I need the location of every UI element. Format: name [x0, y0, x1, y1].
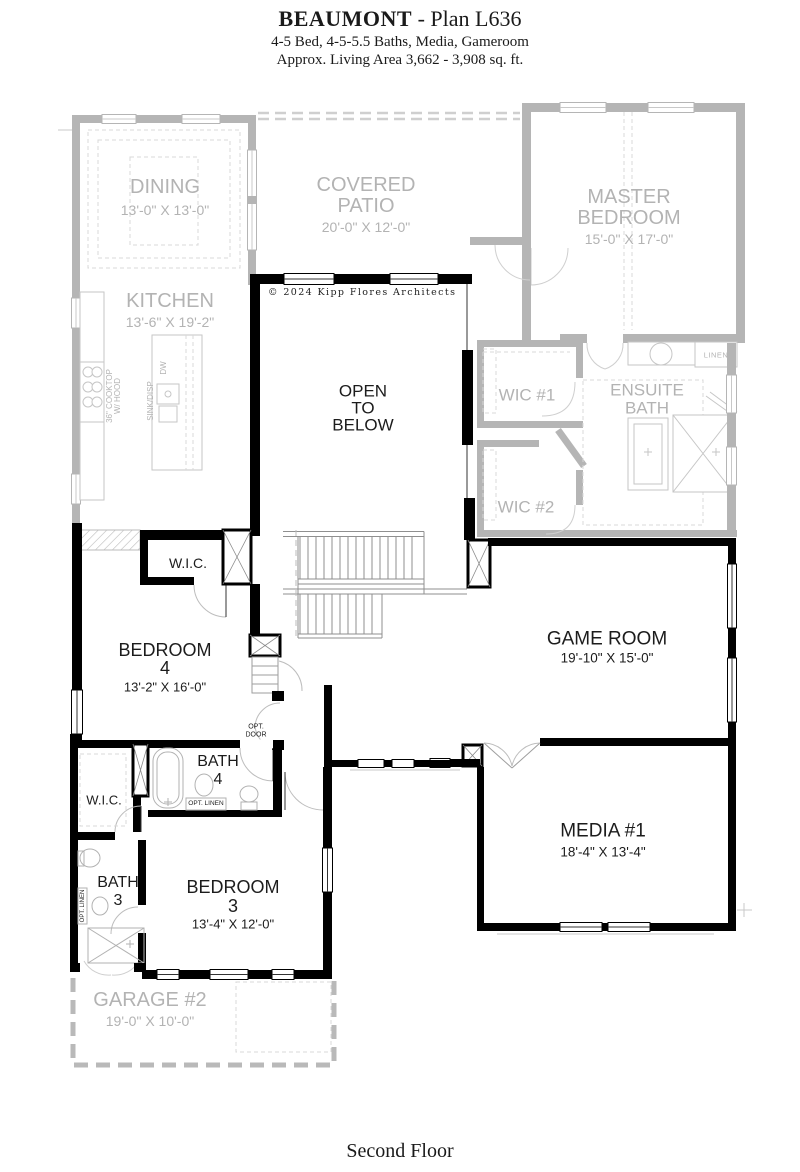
bedroom4-number: 4: [160, 659, 170, 677]
bath4-label: BATH: [197, 754, 238, 770]
wic2-label: WIC #2: [498, 499, 555, 516]
kitchen-island: [152, 335, 202, 470]
master-bedroom-label-2: BEDROOM: [577, 208, 680, 228]
toilet-icon: [78, 849, 100, 867]
ensuite-bath-label-1: ENSUITE: [610, 382, 684, 399]
stairs: [283, 530, 467, 640]
open-below-label-1: OPEN: [339, 383, 387, 400]
ensuite-bath-label-2: BATH: [625, 400, 669, 417]
opt-door-label-1: OPT.: [248, 724, 264, 731]
dining-dims: 13'-0" X 13'-0": [121, 203, 209, 217]
sink-disp-label: SINK/DISP: [147, 381, 155, 421]
media1-label: MEDIA #1: [560, 822, 646, 841]
open-below-label-2: TO: [351, 400, 374, 417]
opt-linen-vertical-label: OPT. LINEN: [80, 890, 86, 923]
master-bedroom-label-1: MASTER: [587, 187, 670, 207]
bedroom3-walls: [142, 685, 480, 980]
kitchen-sink-icon: [157, 384, 179, 422]
bath3-label: BATH: [97, 875, 138, 891]
shower-icon: [88, 928, 144, 963]
master-bedroom-dims: 15'-0" X 17'-0": [585, 232, 673, 246]
game-room-label: GAME ROOM: [547, 630, 667, 649]
dining-label: DINING: [130, 177, 200, 197]
wic1-walls: [477, 340, 583, 428]
covered-patio-edge: [258, 113, 520, 119]
kitchen-dims: 13'-6" X 19'-2": [126, 315, 214, 329]
copyright-text: © 2024 Kipp Flores Architects: [268, 287, 456, 298]
wic-bed4-label: W.I.C.: [169, 556, 207, 570]
bathtub-icon: [153, 748, 183, 808]
bedroom3-dims: 13'-4" X 12'-0": [192, 918, 274, 931]
bedroom3-label: BEDROOM: [186, 878, 279, 896]
sink-icon: [195, 774, 213, 796]
opt-linen-label: OPT. LINEN: [188, 801, 223, 808]
garage2-dims: 19'-0" X 10'-0": [106, 1014, 194, 1028]
opt-door-label-2: DOOR: [246, 732, 267, 739]
hatched-rail: [78, 530, 140, 550]
sink-icon: [92, 897, 108, 915]
covered-patio-label-1: COVERED: [317, 175, 416, 195]
floor-name: Second Floor: [0, 1140, 800, 1163]
toilet-icon: [240, 786, 258, 810]
wic-bed3-label: W.I.C.: [86, 794, 121, 807]
floor-plan-page: BEAUMONT - Plan L636 4-5 Bed, 4-5-5.5 Ba…: [0, 0, 800, 1172]
ensuite-bath-fixtures: [583, 342, 737, 536]
kitchen-label: KITCHEN: [126, 291, 214, 311]
covered-patio-label-2: PATIO: [337, 196, 394, 216]
cooktop-label: 36" COOKTOP W/ HOOD: [106, 369, 122, 423]
hall-linen-shelves: [252, 657, 278, 693]
dw-label: DW: [160, 361, 168, 374]
bathtub-icon: [628, 418, 668, 490]
bedroom4-dims: 13'-2" X 16'-0": [124, 681, 206, 694]
open-below-label-3: BELOW: [332, 417, 393, 434]
covered-patio-dims: 20'-0" X 12'-0": [322, 220, 410, 234]
garage2-label: GARAGE #2: [93, 990, 206, 1010]
wic-bed3-walls: [70, 734, 148, 844]
bath4-number: 4: [214, 772, 223, 788]
bath3-number: 3: [114, 893, 123, 909]
wic-bed4-walls: [78, 530, 252, 617]
linen-label: LINEN: [704, 351, 729, 359]
bedroom4-label: BEDROOM: [118, 641, 211, 659]
game-room-dims: 19'-10" X 15'-0": [561, 651, 654, 665]
media1-dims: 18'-4" X 13'-4": [560, 845, 645, 859]
wic1-label: WIC #1: [499, 387, 556, 404]
bedroom3-number: 3: [228, 897, 238, 915]
cooktop-icon: [80, 362, 104, 422]
